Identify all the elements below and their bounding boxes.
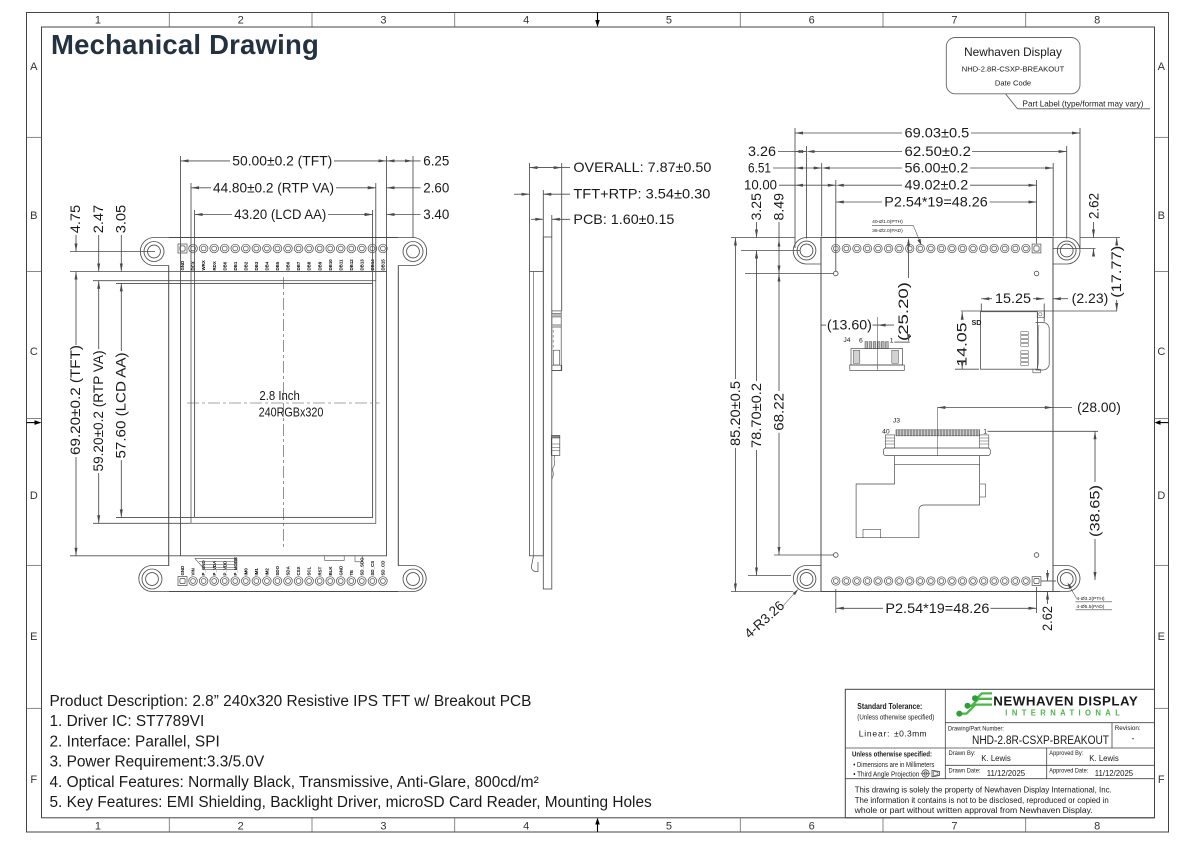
svg-text:4: 4 [523,821,529,833]
svg-text:A: A [30,61,38,73]
svg-text:Revision:: Revision: [1115,725,1141,732]
svg-text:8.49: 8.49 [771,193,786,221]
svg-text:B: B [1158,210,1165,222]
svg-text:SDA: SDA [286,565,291,575]
svg-text:59.20±0.2 (RTP VA): 59.20±0.2 (RTP VA) [91,351,106,472]
svg-text:43.20 (LCD AA): 43.20 (LCD AA) [234,207,326,222]
svg-text:1. Driver IC: ST7789VI: 1. Driver IC: ST7789VI [50,713,205,730]
svg-text:P_GND: P_GND [201,560,206,575]
svg-text:10.00: 10.00 [744,178,777,193]
svg-text:BLK: BLK [328,566,333,576]
svg-text:6: 6 [809,821,815,833]
svg-text:D: D [1157,490,1165,502]
svg-text:6: 6 [809,15,815,27]
svg-text:85.20±0.5: 85.20±0.5 [728,381,743,446]
svg-text:TE: TE [349,570,354,576]
svg-text:6.51: 6.51 [748,160,771,175]
svg-text:5. Key Features: EMI Shielding: 5. Key Features: EMI Shielding, Backligh… [50,794,653,811]
svg-text:3.05: 3.05 [114,205,129,234]
svg-text:68.22: 68.22 [771,393,786,431]
svg-text:11/12/2025: 11/12/2025 [1095,769,1134,778]
svg-text:• Third Angle Projection: • Third Angle Projection [853,770,919,779]
svg-text:Linear:: Linear: [859,729,891,739]
svg-text:NHD-2.8R-CSXP-BREAKOUT: NHD-2.8R-CSXP-BREAKOUT [972,733,1109,747]
svg-text:SD_CD: SD_CD [381,561,386,576]
svg-text:1: 1 [890,337,894,344]
svg-text:B: B [30,210,37,222]
svg-text:SD: SD [972,318,982,327]
svg-text:IM0: IM0 [243,568,248,576]
svg-text:SCL: SCL [307,566,312,575]
svg-text:4.75: 4.75 [68,205,83,234]
svg-text:NEWHAVEN DISPLAY: NEWHAVEN DISPLAY [993,694,1138,709]
svg-text:4: 4 [523,15,529,27]
svg-text:DB5: DB5 [275,261,280,270]
svg-text:WRX: WRX [201,260,206,270]
svg-text:3: 3 [380,821,386,833]
svg-text:DB11: DB11 [338,259,343,271]
svg-text:1: 1 [95,15,101,27]
svg-text:SDO: SDO [275,565,280,575]
svg-text:3.25: 3.25 [749,193,764,221]
svg-text:3.26: 3.26 [748,144,776,159]
svg-text:4-Ø5.5(PAD): 4-Ø5.5(PAD) [1077,604,1105,610]
svg-text:F: F [1158,774,1165,786]
svg-text:C: C [1157,346,1165,358]
svg-text:NHD-2.8R-CSXP-BREAKOUT: NHD-2.8R-CSXP-BREAKOUT [962,65,1065,74]
svg-text:8: 8 [1094,15,1100,27]
svg-text:78.70±0.2: 78.70±0.2 [749,383,764,448]
svg-text:• Dimensions are in Millimeter: • Dimensions are in Millimeters [853,760,934,769]
svg-text:57.60 (LCD AA): 57.60 (LCD AA) [114,353,129,459]
svg-text:SD_CS: SD_CS [370,561,375,576]
svg-text:3.40: 3.40 [423,207,449,222]
svg-text:D: D [30,490,38,502]
svg-text:±0.3mm: ±0.3mm [894,729,927,739]
svg-text:Approved Date:: Approved Date: [1049,767,1088,774]
svg-text:VIN: VIN [191,568,196,575]
svg-text:PCB: 1.60±0.15: PCB: 1.60±0.15 [573,212,674,227]
svg-text:5: 5 [666,821,672,833]
svg-text:(28.00): (28.00) [1077,400,1121,415]
svg-text:2.62: 2.62 [1087,193,1102,219]
svg-text:DB2: DB2 [243,261,248,270]
svg-text:RDX: RDX [212,261,217,270]
svg-text:E: E [30,631,37,643]
svg-text:DB4: DB4 [265,261,270,270]
svg-text:(38.65): (38.65) [1087,485,1102,537]
svg-text:11/12/2025: 11/12/2025 [987,769,1026,778]
svg-text:240RGBx320: 240RGBx320 [259,405,324,420]
svg-text:Approved By:: Approved By: [1049,750,1083,757]
svg-text:Drawn By:: Drawn By: [949,750,976,757]
svg-text:whole or part without written: whole or part without written approval f… [854,806,1093,815]
svg-text:36-Ø2.0(PAD): 36-Ø2.0(PAD) [872,228,903,234]
svg-text:J4: J4 [843,337,850,344]
svg-text:1: 1 [95,821,101,833]
svg-text:(17.77): (17.77) [1109,246,1124,298]
svg-text:DB0: DB0 [222,261,227,270]
svg-text:DB7: DB7 [296,261,301,270]
svg-text:6.25: 6.25 [423,153,449,168]
svg-text:J3: J3 [893,418,900,425]
svg-text:(Unless otherwise specified): (Unless otherwise specified) [857,713,934,722]
svg-text:40-Ø1.0(PTH): 40-Ø1.0(PTH) [872,219,903,225]
svg-text:(2.23): (2.23) [1072,291,1109,306]
svg-text:5: 5 [666,15,672,27]
svg-text:DB1: DB1 [233,261,238,270]
svg-text:49.02±0.2: 49.02±0.2 [905,178,969,193]
svg-text:DB12: DB12 [349,259,354,271]
svg-text:50.00±0.2 (TFT): 50.00±0.2 (TFT) [232,153,332,168]
svg-text:The information it contains is: The information it contains is not to be… [855,796,1109,805]
svg-text:A: A [1158,61,1166,73]
svg-text:(13.60): (13.60) [827,318,872,333]
svg-text:Unless otherwise specified:: Unless otherwise specified: [852,750,932,759]
svg-text:Product Description: 2.8” 240x: Product Description: 2.8” 240x320 Resist… [50,693,532,710]
svg-text:Standard Tolerance:: Standard Tolerance: [857,702,922,711]
svg-text:8: 8 [1094,821,1100,833]
svg-text:C: C [30,346,38,358]
svg-text:56.00±0.2: 56.00±0.2 [905,160,969,175]
svg-text:P2.54*19=48.26: P2.54*19=48.26 [885,601,989,616]
svg-text:Date Code: Date Code [995,79,1031,88]
svg-text:P_VDA: P_VDA [212,560,217,575]
svg-text:Drawn Date:: Drawn Date: [949,767,981,774]
svg-text:SD_SDO: SD_SDO [359,557,364,576]
svg-text:DB10: DB10 [328,259,333,271]
svg-text:DB15: DB15 [381,259,386,271]
svg-text:DB3: DB3 [254,261,259,270]
svg-text:6: 6 [859,337,863,344]
svg-text:1: 1 [983,429,987,436]
svg-text:Mechanical Drawing: Mechanical Drawing [51,29,319,60]
svg-text:CSX: CSX [296,566,301,575]
svg-text:-: - [1132,734,1135,744]
svg-text:2.62: 2.62 [1040,606,1055,631]
svg-text:2.8 Inch: 2.8 Inch [259,388,299,403]
svg-text:DB8: DB8 [307,261,312,270]
svg-text:F: F [30,774,37,786]
svg-text:3: 3 [380,15,386,27]
svg-text:3. Power Requirement:3.3/5.0V: 3. Power Requirement:3.3/5.0V [50,754,265,771]
svg-text:40: 40 [882,429,890,436]
svg-text:2.60: 2.60 [423,180,449,195]
svg-text:GND: GND [180,566,185,576]
svg-text:DB13: DB13 [359,259,364,271]
svg-text:2.47: 2.47 [91,205,106,234]
svg-text:(25.20): (25.20) [896,282,911,341]
svg-text:DB6: DB6 [286,261,291,270]
svg-text:This drawing is solely the pro: This drawing is solely the property of N… [855,786,1112,795]
svg-text:P_VDD: P_VDD [222,561,227,576]
svg-text:GND: GND [338,566,343,576]
svg-text:Newhaven Display: Newhaven Display [964,45,1062,59]
svg-text:15.25: 15.25 [995,291,1031,306]
svg-text:P2.54*19=48.26: P2.54*19=48.26 [884,194,987,209]
svg-text:OVERALL: 7.87±0.50: OVERALL: 7.87±0.50 [573,160,711,175]
svg-text:4. Optical Features: Normally: 4. Optical Features: Normally Black, Tra… [50,774,539,791]
svg-text:E: E [1158,631,1165,643]
svg-text:7: 7 [951,15,957,27]
svg-text:4-Ø3.2(PTH): 4-Ø3.2(PTH) [1077,596,1105,602]
svg-text:2: 2 [238,15,244,27]
svg-text:TFT+RTP: 3.54±0.30: TFT+RTP: 3.54±0.30 [573,187,710,202]
svg-text:14.05: 14.05 [955,323,970,367]
svg-text:44.80±0.2 (RTP VA): 44.80±0.2 (RTP VA) [213,180,334,195]
svg-text:K. Lewis: K. Lewis [981,754,1011,763]
svg-text:RST: RST [317,566,322,575]
svg-text:INTERNATIONAL: INTERNATIONAL [1005,708,1124,717]
svg-text:IM2: IM2 [265,568,270,576]
svg-text:69.20±0.2 (TFT): 69.20±0.2 (TFT) [68,345,83,455]
svg-text:62.50±0.2: 62.50±0.2 [905,144,971,159]
svg-text:69.03±0.5: 69.03±0.5 [905,125,970,140]
svg-text:Drawing/Part Number:: Drawing/Part Number: [948,726,1004,733]
svg-text:2: 2 [238,821,244,833]
svg-text:K. Lewis: K. Lewis [1089,754,1119,763]
svg-text:2. Interface: Parallel, SPI: 2. Interface: Parallel, SPI [50,733,220,750]
svg-text:IM1: IM1 [254,568,259,576]
svg-text:7: 7 [951,821,957,833]
svg-text:Part Label (type/format may va: Part Label (type/format may vary) [1023,99,1144,108]
svg-text:DB9: DB9 [317,261,322,270]
